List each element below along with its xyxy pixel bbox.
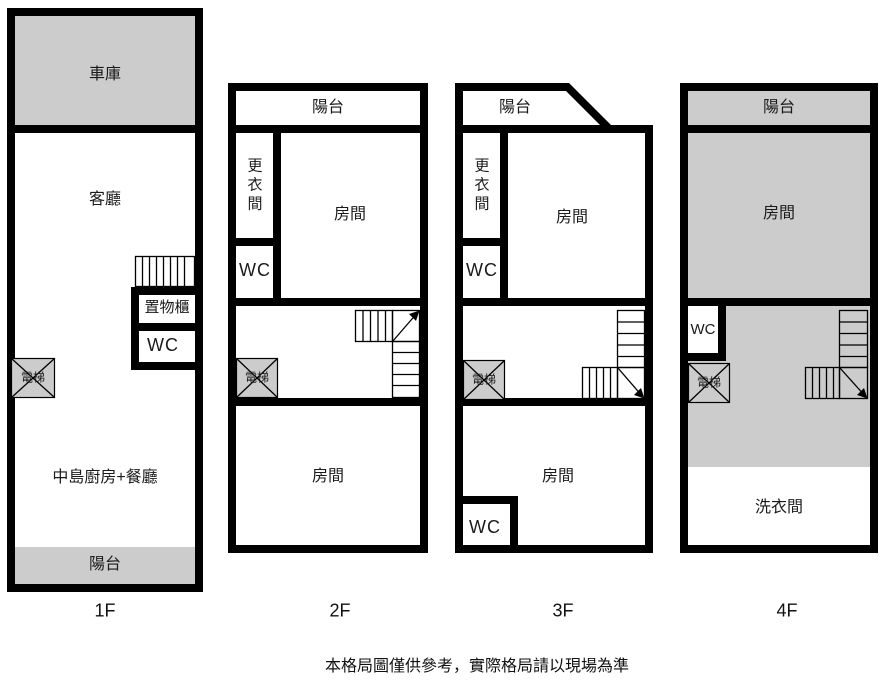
room-label-elevator: 電梯 — [21, 371, 45, 384]
disclaimer-text: 本格局圖僅供參考，實際格局請以現場為準 — [325, 652, 629, 676]
room-label-elevator: 電梯 — [697, 376, 721, 389]
room-label-cabinet: 置物櫃 — [144, 300, 189, 317]
shaded-areas — [688, 91, 870, 467]
floor-tag-1f: 1F — [94, 601, 115, 622]
room-label-laundry: 洗衣間 — [755, 499, 803, 517]
room-label-elevator: 電梯 — [245, 371, 269, 384]
floor-plan-2f: 陽台 更衣間 WC 房間 電梯 房間 — [228, 83, 428, 553]
floor-tag-2f: 2F — [329, 601, 350, 622]
room-label-dressing: 更衣間 — [247, 157, 264, 214]
floor-plan-3f: 陽台 更衣間 WC 房間 電梯 房間 WC — [455, 83, 653, 553]
room-label-balcony: 陽台 — [499, 99, 531, 117]
room-label-balcony: 陽台 — [763, 99, 795, 117]
floor-4f-structure — [680, 83, 878, 553]
room-label-room: 房間 — [763, 205, 795, 223]
room-label-room-upper: 房間 — [334, 206, 366, 224]
room-label-wc: WC — [147, 336, 179, 356]
room-label-dressing: 更衣間 — [474, 157, 491, 214]
room-label-wc-upper: WC — [466, 261, 498, 281]
room-label-living: 客廳 — [89, 191, 121, 209]
room-label-balcony: 陽台 — [312, 99, 344, 117]
staircase — [356, 311, 420, 398]
floor-plan-1f: 車庫 客廳 置物櫃 WC 電梯 中島廚房+餐廳 陽台 — [7, 8, 203, 592]
room-label-garage: 車庫 — [89, 66, 121, 84]
room-label-balcony: 陽台 — [89, 556, 121, 574]
room-label-kitchen: 中島廚房+餐廳 — [52, 469, 157, 487]
floor-plan-4f: 陽台 房間 WC 電梯 洗衣間 — [680, 83, 878, 553]
floor-plan-sheet: 車庫 客廳 置物櫃 WC 電梯 中島廚房+餐廳 陽台 — [0, 0, 889, 685]
staircase — [583, 311, 645, 399]
staircase — [136, 257, 195, 287]
room-label-wc: WC — [239, 261, 271, 281]
room-label-room-upper: 房間 — [556, 209, 588, 227]
room-label-wc: WC — [691, 322, 716, 339]
floor-tag-3f: 3F — [552, 601, 573, 622]
floor-tag-4f: 4F — [776, 601, 797, 622]
room-label-elevator: 電梯 — [472, 373, 496, 386]
room-label-room-lower: 房間 — [542, 468, 574, 486]
room-label-room-lower: 房間 — [312, 468, 344, 486]
room-label-wc-lower: WC — [469, 518, 501, 538]
